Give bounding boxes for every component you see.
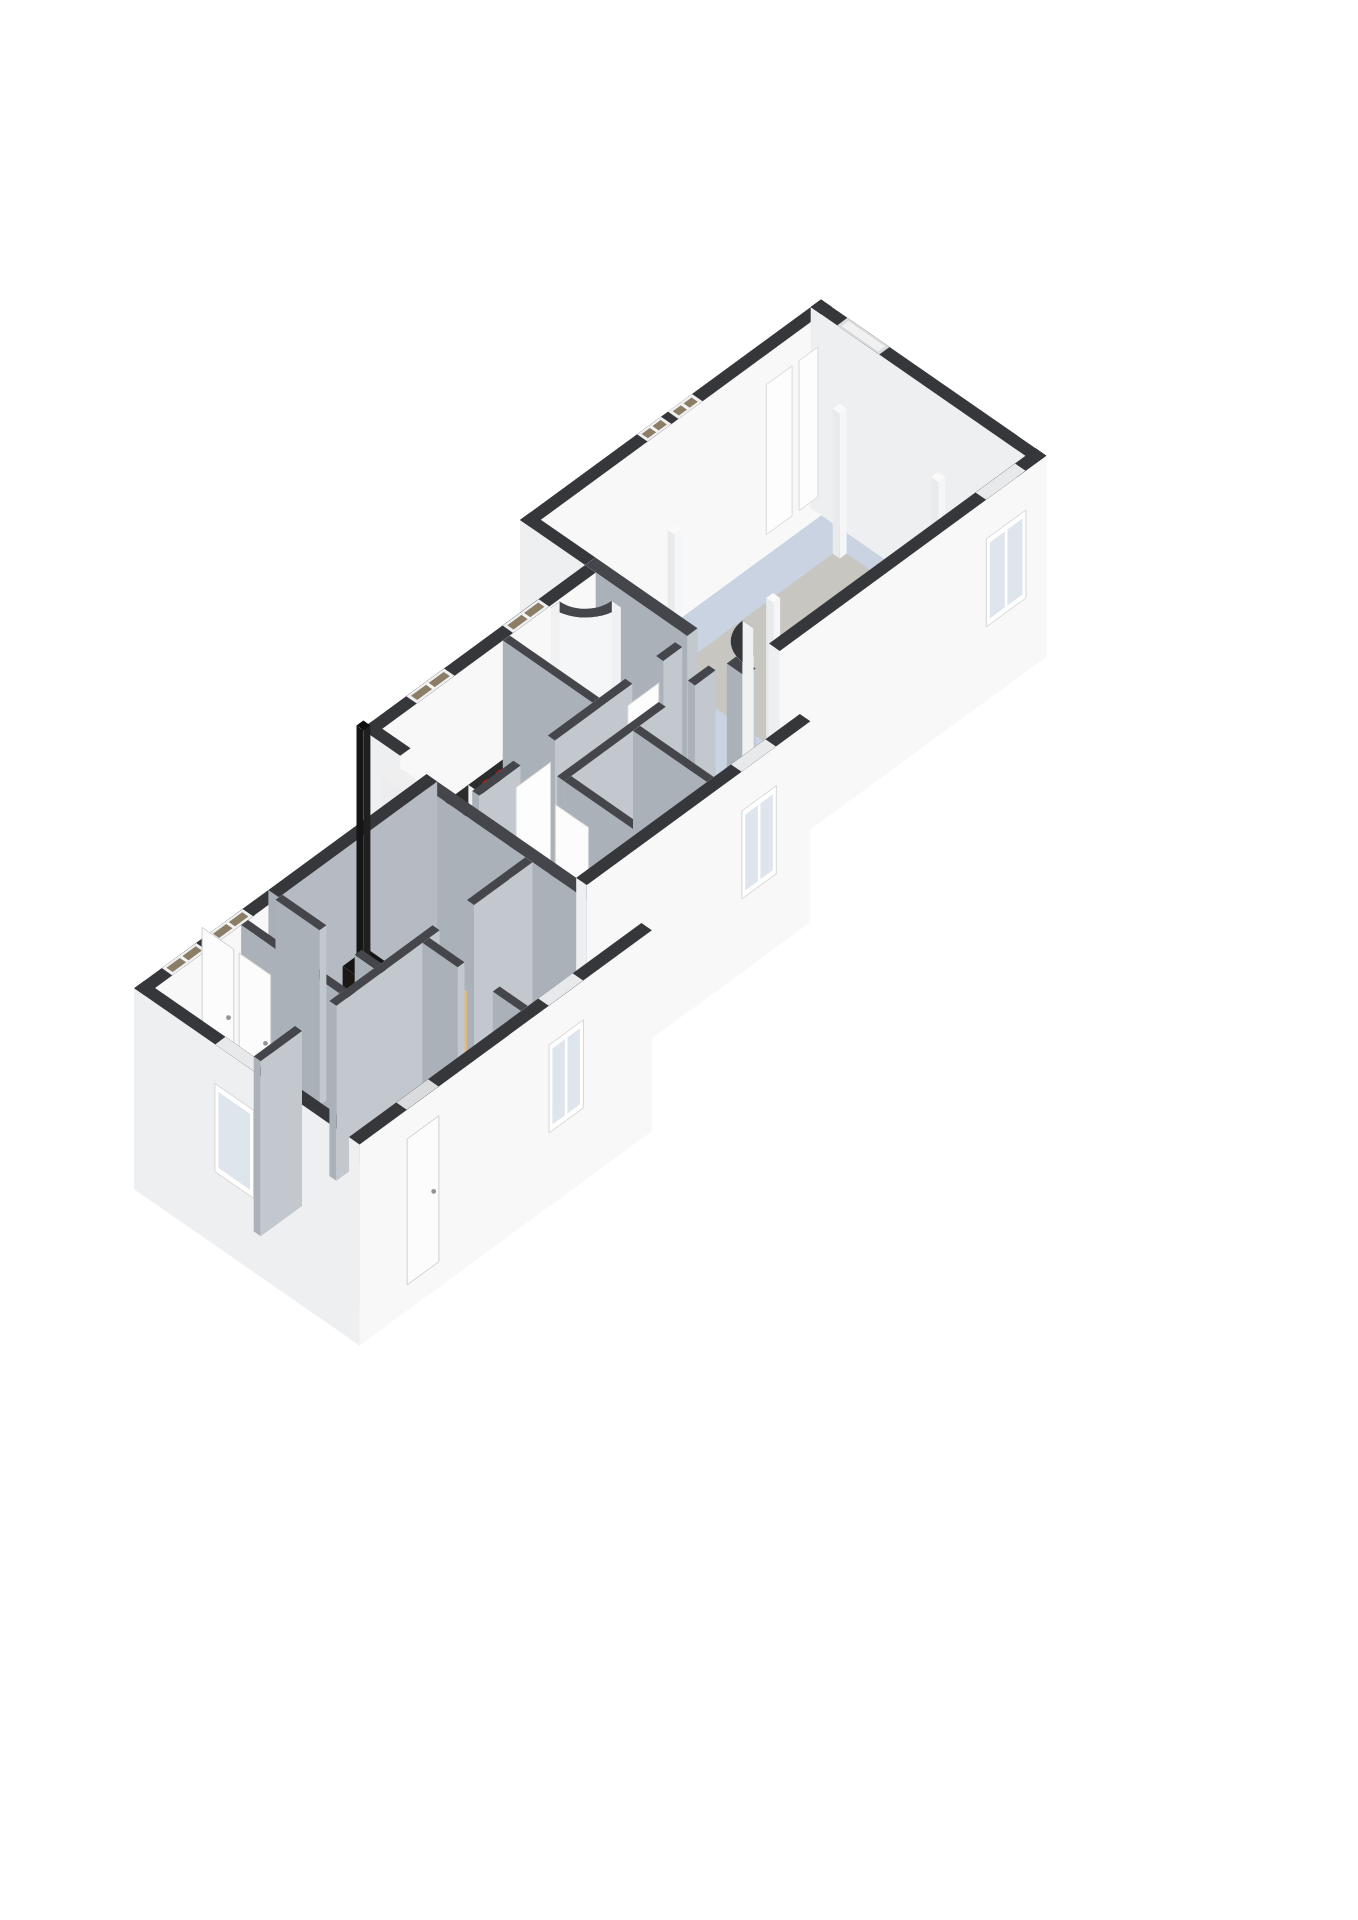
post-2	[833, 404, 847, 559]
floorplan-3d-render	[0, 0, 1358, 1920]
wall-west-mid-a	[254, 1026, 302, 1236]
floorplan-viewport	[0, 0, 1358, 1920]
door-panel-2	[799, 347, 818, 511]
door-panel-1	[766, 366, 792, 535]
stove-chimney	[357, 721, 371, 969]
